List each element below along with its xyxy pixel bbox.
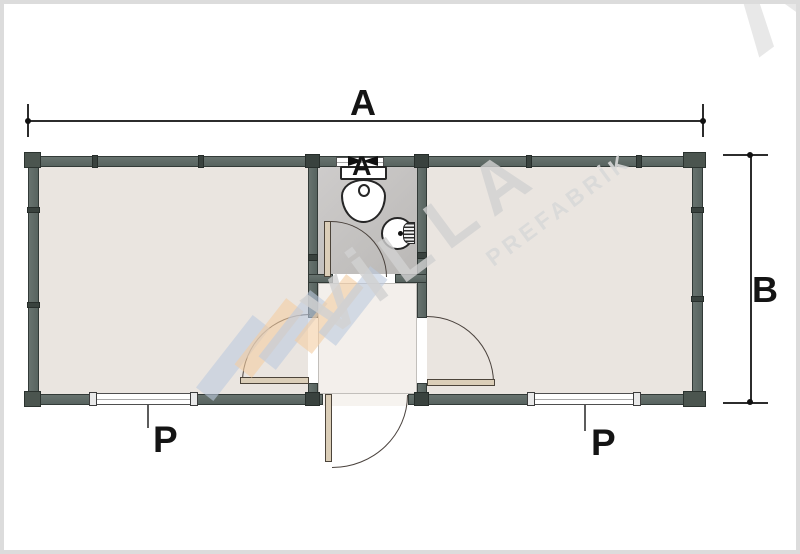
sink-drain-icon (398, 231, 403, 236)
entrance-door-arc (332, 395, 408, 468)
dimension-endpoint (747, 399, 753, 405)
panel-joint (27, 302, 40, 308)
window-label-right: P (591, 424, 616, 461)
window-right (528, 393, 640, 405)
window-right-cap (527, 392, 535, 406)
bathroom-window-marker: A (352, 153, 372, 180)
dimension-endpoint (747, 152, 753, 158)
wall-junction (414, 154, 429, 168)
panel-joint (526, 155, 532, 168)
window-leader-line (147, 405, 149, 428)
wall-left (28, 156, 39, 405)
window-leader-line (584, 405, 586, 431)
wall-right (692, 156, 703, 405)
panel-joint (308, 254, 318, 261)
sink-tap-icon (403, 222, 415, 244)
corner-post (24, 152, 41, 168)
left-room-door-leaf (240, 377, 309, 384)
window-right-cap (633, 392, 641, 406)
dimension-endpoint (25, 118, 31, 124)
wall-junction (305, 392, 320, 406)
window-left (90, 393, 197, 405)
wall-hall-right-upper (417, 166, 427, 318)
panel-joint (92, 155, 98, 168)
wall-bathroom-bottom-right (395, 274, 427, 283)
corner-post (683, 391, 706, 407)
corner-post (683, 152, 706, 168)
entrance-door-leaf (325, 394, 332, 462)
panel-joint (417, 252, 427, 259)
dimension-label-a: A (340, 85, 386, 121)
dimension-endpoint (700, 118, 706, 124)
dimension-tick (723, 154, 768, 156)
window-left-cap (190, 392, 198, 406)
toilet-flush-button (358, 184, 370, 197)
window-left-cap (89, 392, 97, 406)
panel-joint (691, 207, 704, 213)
wall-junction (305, 154, 320, 168)
window-label-left: P (153, 421, 178, 458)
watermark-corner-letter: Λ (692, 0, 800, 81)
panel-joint (691, 296, 704, 302)
floor-plan-page: { "page": { "background": "#ffffff", "fr… (0, 0, 800, 554)
panel-joint (636, 155, 642, 168)
right-room-door-leaf (427, 379, 495, 386)
dimension-tick (723, 402, 768, 404)
dimension-label-b: B (752, 272, 778, 308)
panel-joint (27, 207, 40, 213)
panel-joint (198, 155, 204, 168)
corner-post (24, 391, 41, 407)
bathroom-door-leaf (324, 221, 331, 277)
wall-junction (414, 392, 429, 406)
